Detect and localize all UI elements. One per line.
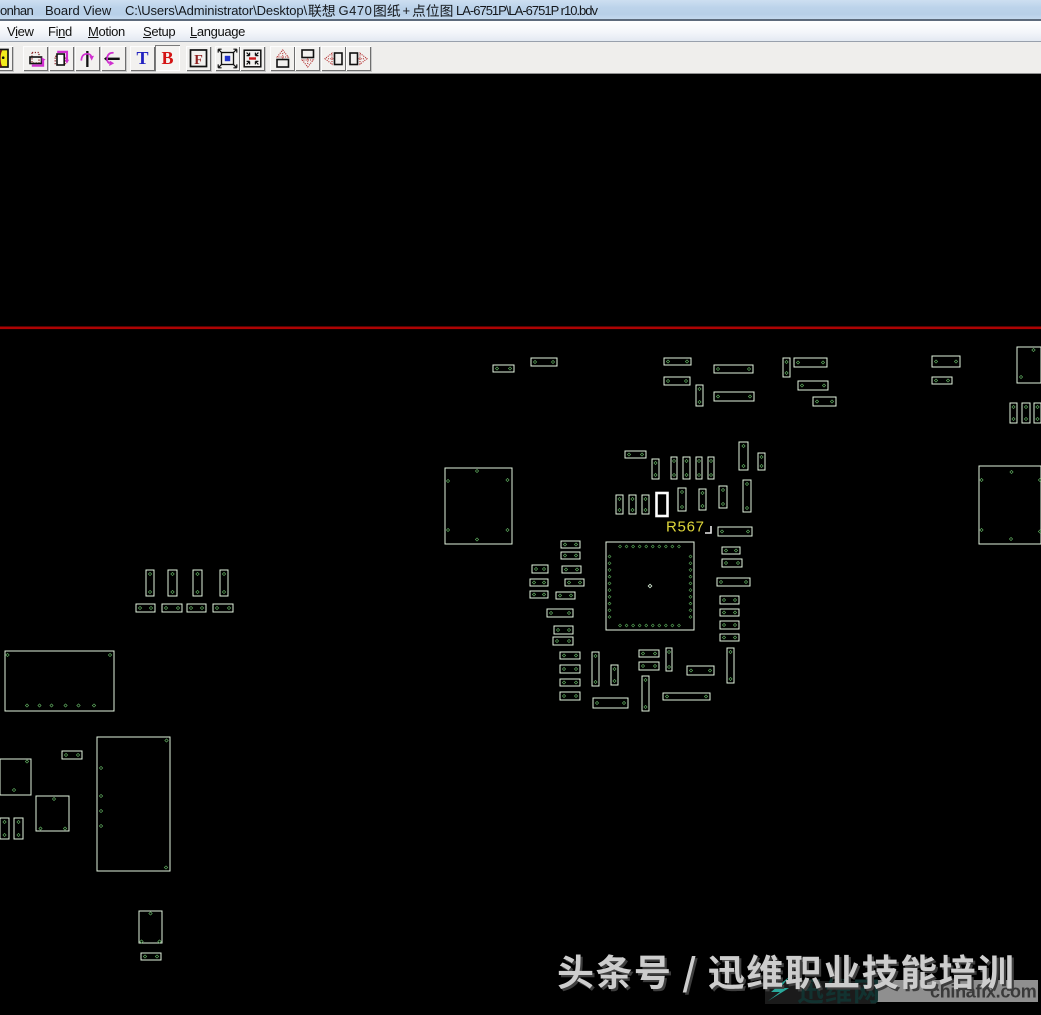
- svg-text:R567: R567: [666, 519, 705, 536]
- svg-text:F: F: [194, 53, 203, 68]
